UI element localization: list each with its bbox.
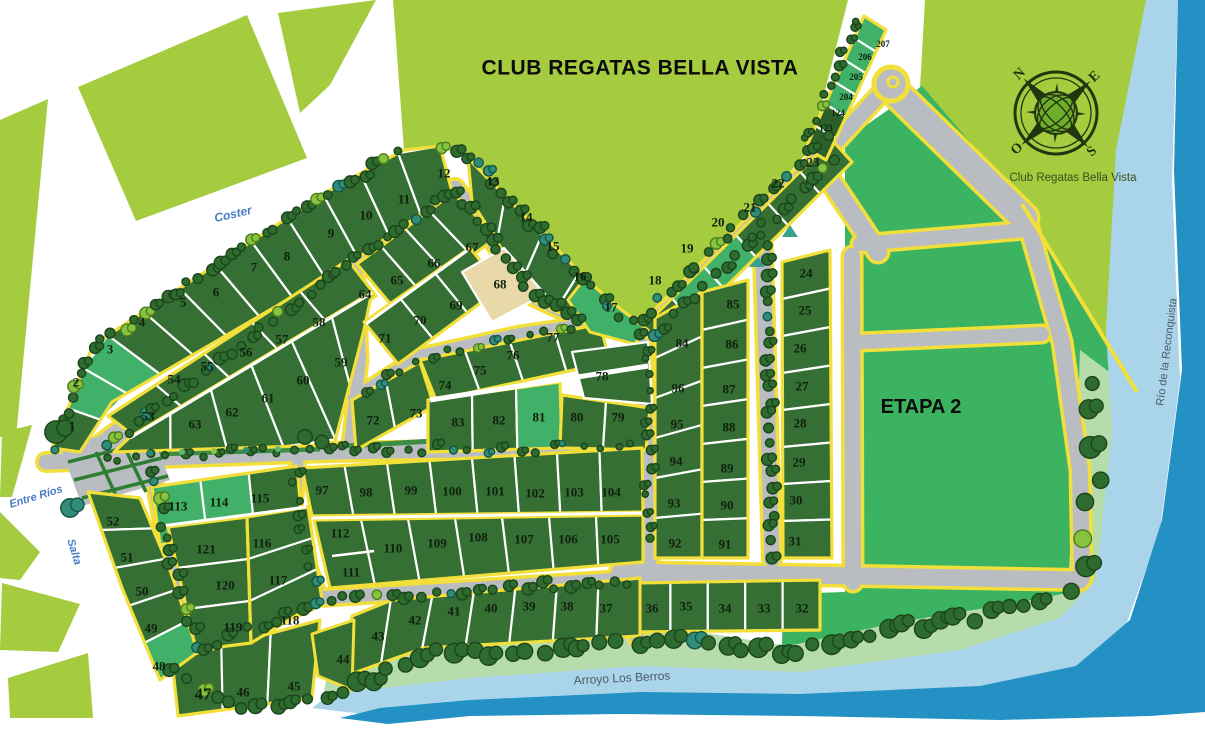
tree-icon bbox=[647, 509, 653, 515]
tree-icon bbox=[567, 325, 575, 333]
tree-icon bbox=[298, 510, 305, 517]
tree-icon bbox=[768, 253, 776, 261]
tree-icon bbox=[559, 440, 565, 446]
tree-icon bbox=[572, 580, 581, 589]
tree-icon bbox=[769, 519, 777, 527]
lot-label-106: 106 bbox=[558, 532, 578, 547]
tree-icon bbox=[387, 369, 394, 376]
tree-icon bbox=[1040, 593, 1052, 605]
tree-icon bbox=[808, 128, 814, 134]
tree-icon bbox=[457, 145, 466, 154]
tree-icon bbox=[379, 154, 389, 164]
tree-icon bbox=[518, 282, 527, 291]
tree-icon bbox=[463, 588, 472, 597]
tree-icon bbox=[840, 47, 846, 53]
lot-parcel bbox=[509, 585, 557, 643]
lot-label-32: 32 bbox=[796, 601, 809, 616]
tree-icon bbox=[852, 631, 864, 643]
tree-icon bbox=[630, 316, 638, 324]
tree-icon bbox=[489, 646, 502, 659]
tree-icon bbox=[417, 592, 426, 601]
lot-label-206: 206 bbox=[858, 52, 872, 62]
tree-icon bbox=[64, 409, 73, 418]
lot-label-97: 97 bbox=[316, 483, 330, 498]
tree-icon bbox=[902, 615, 914, 627]
lot-label-44: 44 bbox=[337, 652, 351, 667]
tree-icon bbox=[471, 201, 480, 210]
tree-icon bbox=[399, 219, 408, 228]
lot-label-94: 94 bbox=[670, 454, 684, 469]
tree-icon bbox=[51, 446, 59, 454]
tree-icon bbox=[243, 623, 252, 632]
tree-icon bbox=[642, 355, 648, 361]
lot-label-76: 76 bbox=[507, 348, 521, 363]
tree-icon bbox=[538, 646, 553, 661]
tree-icon bbox=[640, 329, 648, 337]
lot-label-124: 124 bbox=[831, 108, 845, 118]
tree-icon bbox=[200, 453, 207, 460]
lot-label-7: 7 bbox=[251, 260, 258, 275]
tree-icon bbox=[412, 358, 418, 364]
tree-icon bbox=[820, 91, 828, 99]
lot-label-75: 75 bbox=[474, 363, 488, 378]
lot-label-54: 54 bbox=[168, 372, 182, 387]
tree-icon bbox=[509, 335, 515, 341]
lot-label-84: 84 bbox=[676, 336, 690, 351]
tree-icon bbox=[293, 207, 301, 215]
lot-label-83: 83 bbox=[452, 415, 466, 430]
tree-icon bbox=[354, 252, 361, 259]
lot-label-96: 96 bbox=[672, 381, 686, 396]
tree-icon bbox=[204, 644, 212, 652]
tree-icon bbox=[954, 608, 966, 620]
tree-icon bbox=[223, 696, 235, 708]
lot-label-12: 12 bbox=[438, 166, 451, 181]
tree-icon bbox=[1087, 556, 1102, 571]
tree-icon bbox=[1063, 583, 1079, 599]
tree-icon bbox=[813, 172, 822, 181]
lot-label-85: 85 bbox=[727, 297, 741, 312]
shrub-icon bbox=[211, 448, 217, 454]
tree-icon bbox=[105, 328, 115, 338]
tree-icon bbox=[813, 143, 821, 151]
tree-icon bbox=[772, 552, 780, 560]
lot-label-79: 79 bbox=[612, 410, 626, 425]
tree-icon bbox=[299, 525, 305, 531]
lot-label-118: 118 bbox=[281, 613, 300, 628]
tree-icon bbox=[748, 233, 756, 241]
tree-icon bbox=[851, 35, 857, 41]
tree-icon bbox=[463, 447, 470, 454]
tree-icon bbox=[427, 206, 435, 214]
lot-label-49: 49 bbox=[145, 621, 159, 636]
tree-icon bbox=[438, 439, 445, 446]
lot-label-69: 69 bbox=[450, 298, 464, 313]
tree-icon bbox=[442, 142, 450, 150]
tree-icon bbox=[315, 435, 329, 449]
tree-icon bbox=[1017, 600, 1030, 613]
lot-label-17: 17 bbox=[605, 300, 619, 315]
lot-label-108: 108 bbox=[468, 530, 488, 545]
tree-icon bbox=[474, 158, 483, 167]
tree-icon bbox=[627, 440, 634, 447]
tree-icon bbox=[831, 73, 839, 81]
lot-label-110: 110 bbox=[384, 541, 403, 556]
tree-icon bbox=[690, 294, 700, 304]
tree-icon bbox=[251, 447, 257, 453]
lot-label-31: 31 bbox=[789, 534, 802, 549]
tree-icon bbox=[567, 307, 576, 316]
tree-icon bbox=[467, 153, 474, 160]
lot-label-40: 40 bbox=[485, 601, 498, 616]
tree-icon bbox=[489, 449, 495, 455]
tree-icon bbox=[595, 581, 603, 589]
tree-icon bbox=[489, 165, 496, 172]
lot-label-50: 50 bbox=[136, 584, 149, 599]
tree-icon bbox=[523, 271, 531, 279]
tree-icon bbox=[104, 454, 111, 461]
lot-label-64: 64 bbox=[359, 287, 373, 302]
tree-icon bbox=[701, 636, 715, 650]
tree-icon bbox=[1085, 377, 1099, 391]
lot-parcel bbox=[455, 517, 509, 577]
tree-icon bbox=[767, 406, 775, 414]
tree-icon bbox=[429, 643, 442, 656]
tree-icon bbox=[405, 446, 412, 453]
lot-label-116: 116 bbox=[253, 536, 272, 551]
tree-icon bbox=[150, 477, 158, 485]
lot-label-207: 207 bbox=[876, 39, 890, 49]
tree-icon bbox=[1092, 472, 1108, 488]
tree-icon bbox=[587, 281, 595, 289]
tree-icon bbox=[496, 188, 506, 198]
tree-icon bbox=[296, 498, 303, 505]
tree-icon bbox=[650, 633, 665, 648]
lot-label-8: 8 bbox=[284, 249, 291, 264]
lot-label-35: 35 bbox=[680, 599, 694, 614]
lot-label-66: 66 bbox=[428, 256, 442, 271]
tree-icon bbox=[317, 576, 324, 583]
lot-label-18: 18 bbox=[649, 273, 663, 288]
tree-icon bbox=[488, 585, 497, 594]
lot-label-61: 61 bbox=[262, 391, 275, 406]
lot-label-113: 113 bbox=[169, 499, 188, 514]
tree-icon bbox=[256, 698, 267, 709]
tree-icon bbox=[763, 241, 772, 250]
lot-label-4: 4 bbox=[139, 315, 146, 330]
lot-label-60: 60 bbox=[297, 373, 310, 388]
lot-label-36: 36 bbox=[646, 601, 660, 616]
lot-label-53: 53 bbox=[142, 409, 156, 424]
tree-icon bbox=[853, 18, 859, 24]
lot-label-205: 205 bbox=[849, 72, 863, 82]
lot-label-204: 204 bbox=[839, 92, 853, 102]
lot-label-15: 15 bbox=[547, 239, 561, 254]
tree-icon bbox=[1091, 436, 1107, 452]
lot-label-88: 88 bbox=[723, 420, 737, 435]
tree-icon bbox=[664, 324, 671, 331]
tree-icon bbox=[130, 316, 138, 324]
tree-icon bbox=[196, 623, 204, 631]
tree-icon bbox=[298, 430, 313, 445]
tree-icon bbox=[644, 480, 650, 486]
lot-label-24: 24 bbox=[800, 266, 814, 281]
tree-icon bbox=[502, 442, 509, 449]
shrub-icon bbox=[275, 446, 281, 452]
lot-label-48: 48 bbox=[153, 659, 167, 674]
lot-label-5: 5 bbox=[180, 295, 187, 310]
lot-label-71: 71 bbox=[379, 331, 392, 346]
lot-label-45: 45 bbox=[288, 679, 302, 694]
tree-icon bbox=[704, 248, 713, 257]
lot-label-63: 63 bbox=[189, 417, 203, 432]
tree-icon bbox=[151, 466, 158, 473]
lot-label-1: 1 bbox=[69, 419, 76, 434]
lot-label-20: 20 bbox=[712, 215, 725, 230]
tree-icon bbox=[128, 324, 137, 333]
tree-icon bbox=[757, 231, 765, 239]
tree-icon bbox=[759, 637, 773, 651]
tree-icon bbox=[316, 280, 325, 289]
tree-icon bbox=[156, 299, 163, 306]
tree-icon bbox=[291, 446, 299, 454]
tree-icon bbox=[367, 387, 374, 394]
lot-label-13: 13 bbox=[487, 174, 501, 189]
tree-icon bbox=[578, 314, 586, 322]
tree-icon bbox=[170, 663, 179, 672]
lot-label-37: 37 bbox=[600, 601, 614, 616]
lot-label-111: 111 bbox=[342, 565, 360, 580]
tree-icon bbox=[337, 687, 349, 699]
lot-label-59: 59 bbox=[335, 355, 349, 370]
lot-label-16: 16 bbox=[574, 269, 588, 284]
tree-icon bbox=[653, 294, 661, 302]
lot-label-19: 19 bbox=[681, 241, 695, 256]
lot-parcel bbox=[600, 448, 644, 513]
tree-icon bbox=[726, 224, 734, 232]
lot-label-67: 67 bbox=[466, 240, 480, 255]
tree-icon bbox=[1076, 493, 1093, 510]
tree-icon bbox=[374, 241, 383, 250]
tree-icon bbox=[647, 430, 654, 437]
tree-icon bbox=[473, 217, 481, 225]
tree-icon bbox=[823, 101, 830, 108]
tree-icon bbox=[125, 429, 133, 437]
tree-icon bbox=[387, 447, 394, 454]
tree-icon bbox=[770, 337, 777, 344]
tree-icon bbox=[608, 634, 623, 649]
lot-label-72: 72 bbox=[367, 413, 380, 428]
tree-icon bbox=[444, 346, 450, 352]
tree-icon bbox=[728, 262, 736, 270]
tree-icon bbox=[734, 643, 748, 657]
lot-label-102: 102 bbox=[525, 486, 545, 501]
tree-icon bbox=[763, 312, 772, 321]
tree-icon bbox=[456, 348, 464, 356]
lot-label-38: 38 bbox=[561, 599, 575, 614]
tree-icon bbox=[303, 694, 313, 704]
tree-icon bbox=[768, 269, 777, 278]
lot-label-73: 73 bbox=[410, 406, 424, 421]
tree-icon bbox=[330, 443, 337, 450]
tree-icon bbox=[379, 662, 392, 675]
tree-icon bbox=[163, 534, 171, 542]
lot-label-6: 6 bbox=[213, 285, 220, 300]
lot-label-51: 51 bbox=[121, 550, 134, 565]
tree-icon bbox=[351, 175, 360, 184]
lot-label-112: 112 bbox=[331, 526, 350, 541]
lot-label-58: 58 bbox=[313, 315, 327, 330]
tree-icon bbox=[623, 581, 631, 589]
tree-icon bbox=[669, 309, 677, 317]
tree-icon bbox=[434, 353, 441, 360]
tree-icon bbox=[182, 616, 192, 626]
lot-label-114: 114 bbox=[210, 495, 229, 510]
tree-icon bbox=[517, 643, 533, 659]
lot-label-62: 62 bbox=[226, 405, 239, 420]
lot-label-81: 81 bbox=[533, 410, 546, 425]
tree-icon bbox=[647, 388, 653, 394]
compass-caption: Club Regatas Bella Vista bbox=[1010, 172, 1138, 184]
lot-label-33: 33 bbox=[758, 601, 772, 616]
tree-icon bbox=[652, 464, 659, 471]
lot-label-95: 95 bbox=[671, 417, 685, 432]
lot-label-25: 25 bbox=[799, 303, 813, 318]
road bbox=[620, 572, 1080, 580]
tree-icon bbox=[513, 262, 521, 270]
tree-icon bbox=[645, 418, 651, 424]
tree-icon bbox=[597, 445, 603, 451]
lot-label-56: 56 bbox=[240, 345, 254, 360]
lot-label-9: 9 bbox=[328, 226, 335, 241]
tree-icon bbox=[788, 646, 804, 662]
tree-icon bbox=[372, 590, 381, 599]
tree-icon bbox=[231, 444, 237, 450]
tree-icon bbox=[522, 447, 528, 453]
tree-icon bbox=[581, 443, 587, 449]
lot-parcel bbox=[655, 469, 702, 518]
tree-icon bbox=[374, 443, 381, 450]
tree-icon bbox=[592, 635, 607, 650]
lot-parcel bbox=[515, 453, 561, 514]
tree-icon bbox=[674, 630, 687, 643]
lot-label-77: 77 bbox=[547, 330, 561, 345]
tree-icon bbox=[355, 446, 362, 453]
lot-label-117: 117 bbox=[269, 573, 288, 588]
lot-parcel bbox=[557, 451, 602, 514]
tree-icon bbox=[291, 695, 300, 704]
tree-icon bbox=[577, 640, 589, 652]
tree-icon bbox=[182, 278, 190, 286]
lot-label-120: 120 bbox=[215, 578, 235, 593]
tree-icon bbox=[156, 522, 165, 531]
tree-icon bbox=[650, 404, 656, 410]
tree-icon bbox=[479, 584, 486, 591]
lot-label-90: 90 bbox=[721, 498, 734, 513]
tree-icon bbox=[760, 194, 768, 202]
tree-icon bbox=[187, 604, 195, 612]
lot-label-68: 68 bbox=[494, 277, 508, 292]
lot-label-47: 47 bbox=[195, 685, 213, 704]
tree-icon bbox=[254, 323, 263, 332]
tree-icon bbox=[550, 585, 558, 593]
tree-icon bbox=[356, 590, 364, 598]
tree-icon bbox=[268, 225, 277, 234]
lot-label-23: 23 bbox=[807, 155, 821, 170]
tree-icon bbox=[765, 439, 773, 447]
lot-label-2: 2 bbox=[73, 375, 80, 390]
tree-icon bbox=[308, 291, 316, 299]
lot-label-65: 65 bbox=[391, 273, 405, 288]
tree-icon bbox=[531, 449, 539, 457]
tree-icon bbox=[69, 393, 78, 402]
lot-label-43: 43 bbox=[372, 629, 386, 644]
lot-label-104: 104 bbox=[601, 485, 621, 500]
lot-label-103: 103 bbox=[564, 485, 584, 500]
tree-icon bbox=[179, 586, 188, 595]
tree-icon bbox=[767, 369, 775, 377]
tree-icon bbox=[300, 468, 306, 474]
tree-icon bbox=[543, 576, 552, 585]
lot-label-86: 86 bbox=[726, 337, 740, 352]
lot-label-109: 109 bbox=[427, 536, 447, 551]
tree-icon bbox=[306, 445, 313, 452]
tree-icon bbox=[254, 331, 262, 339]
tree-icon bbox=[561, 255, 570, 264]
lot-label-30: 30 bbox=[790, 493, 803, 508]
tree-icon bbox=[381, 380, 388, 387]
tree-icon bbox=[418, 449, 426, 457]
tree-icon bbox=[342, 441, 348, 447]
tree-icon bbox=[651, 445, 658, 452]
tree-icon bbox=[295, 298, 304, 307]
tree-icon bbox=[213, 641, 222, 650]
tree-icon bbox=[179, 569, 187, 577]
tree-icon bbox=[689, 263, 699, 273]
lot-label-91: 91 bbox=[719, 537, 732, 552]
tree-icon bbox=[646, 534, 654, 542]
tree-icon bbox=[269, 317, 278, 326]
lot-label-82: 82 bbox=[493, 413, 506, 428]
lot-label-119: 119 bbox=[224, 620, 243, 635]
tree-icon bbox=[289, 478, 297, 486]
tree-icon bbox=[114, 458, 120, 464]
tree-icon bbox=[648, 346, 655, 353]
tree-icon bbox=[168, 558, 176, 566]
lot-label-3: 3 bbox=[107, 342, 114, 357]
tree-icon bbox=[651, 522, 657, 528]
tree-icon bbox=[730, 251, 739, 260]
tree-icon bbox=[71, 498, 84, 511]
lot-label-29: 29 bbox=[793, 455, 807, 470]
tree-icon bbox=[767, 286, 775, 294]
lot-parcel bbox=[466, 589, 516, 646]
lot-label-115: 115 bbox=[251, 491, 270, 506]
tree-icon bbox=[457, 187, 465, 195]
tree-icon bbox=[678, 281, 686, 289]
lot-label-100: 100 bbox=[442, 484, 462, 499]
lot-label-52: 52 bbox=[107, 514, 120, 529]
tree-icon bbox=[219, 449, 225, 455]
tree-icon bbox=[509, 196, 517, 204]
lot-label-98: 98 bbox=[360, 485, 374, 500]
etapa2-label: ETAPA 2 bbox=[881, 396, 962, 418]
tree-icon bbox=[540, 222, 548, 230]
tree-icon bbox=[306, 545, 312, 551]
lot-label-123: 123 bbox=[819, 123, 833, 133]
tree-icon bbox=[646, 308, 656, 318]
tree-icon bbox=[447, 590, 455, 598]
